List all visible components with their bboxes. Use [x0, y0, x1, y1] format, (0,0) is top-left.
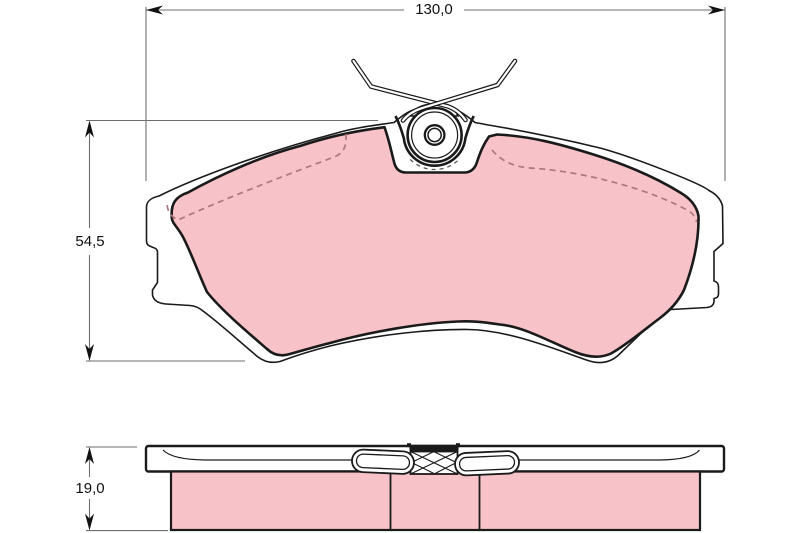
svg-text:54,5: 54,5: [75, 233, 104, 250]
svg-text:130,0: 130,0: [415, 1, 453, 18]
svg-text:19,0: 19,0: [75, 480, 104, 497]
